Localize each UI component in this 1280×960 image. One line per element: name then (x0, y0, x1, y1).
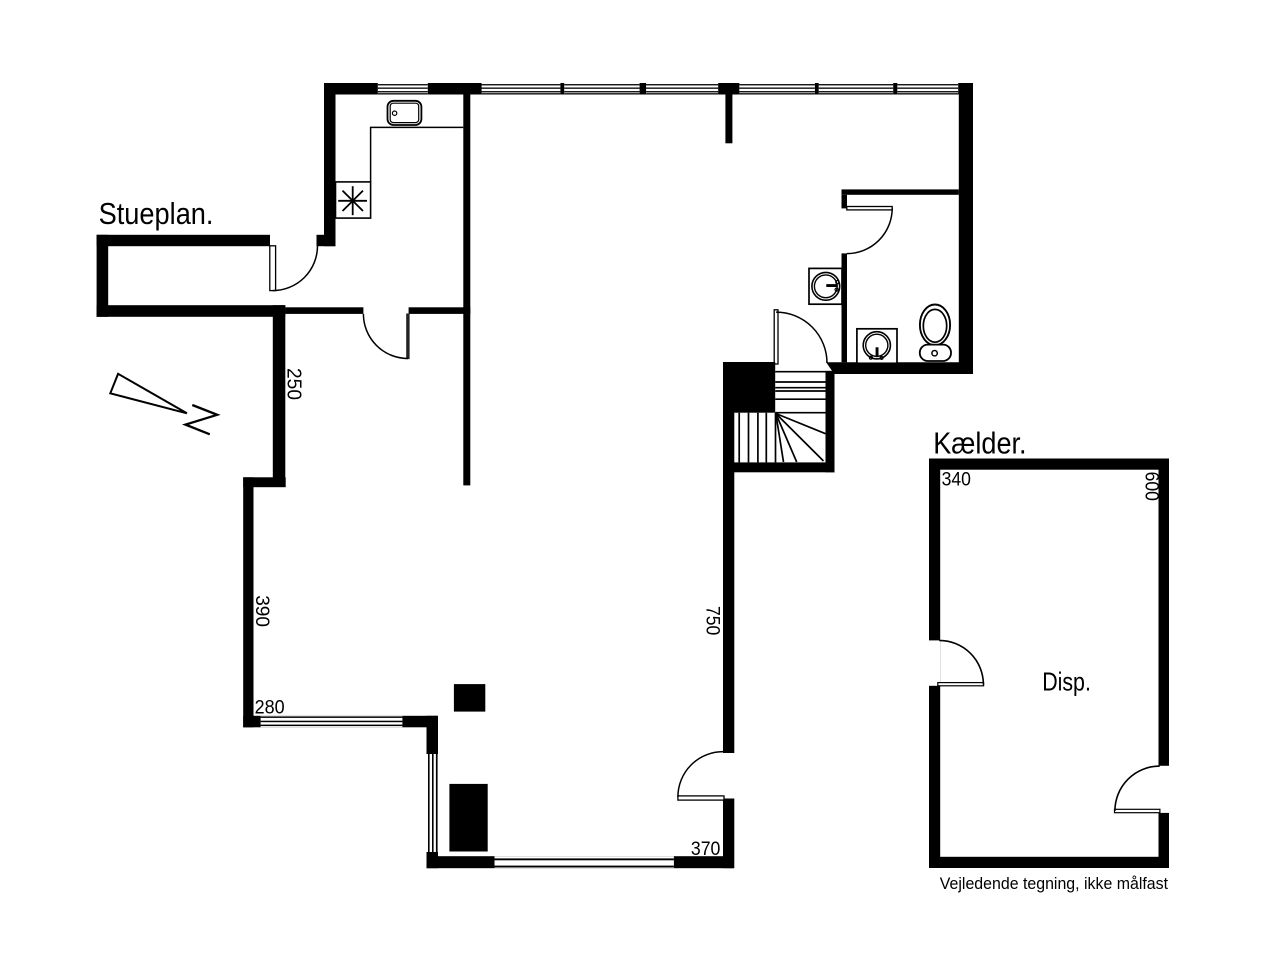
svg-text:370: 370 (691, 839, 721, 860)
svg-text:Kælder.: Kælder. (933, 425, 1026, 460)
svg-text:Vejledende tegning, ikke målfa: Vejledende tegning, ikke målfast (940, 874, 1168, 893)
svg-text:250: 250 (283, 368, 305, 400)
svg-text:340: 340 (942, 469, 971, 490)
svg-text:Stueplan.: Stueplan. (99, 196, 214, 231)
svg-text:390: 390 (251, 595, 272, 627)
svg-text:750: 750 (702, 606, 723, 635)
svg-text:600: 600 (1141, 472, 1162, 501)
svg-text:Disp.: Disp. (1042, 667, 1091, 697)
svg-text:280: 280 (255, 698, 285, 719)
